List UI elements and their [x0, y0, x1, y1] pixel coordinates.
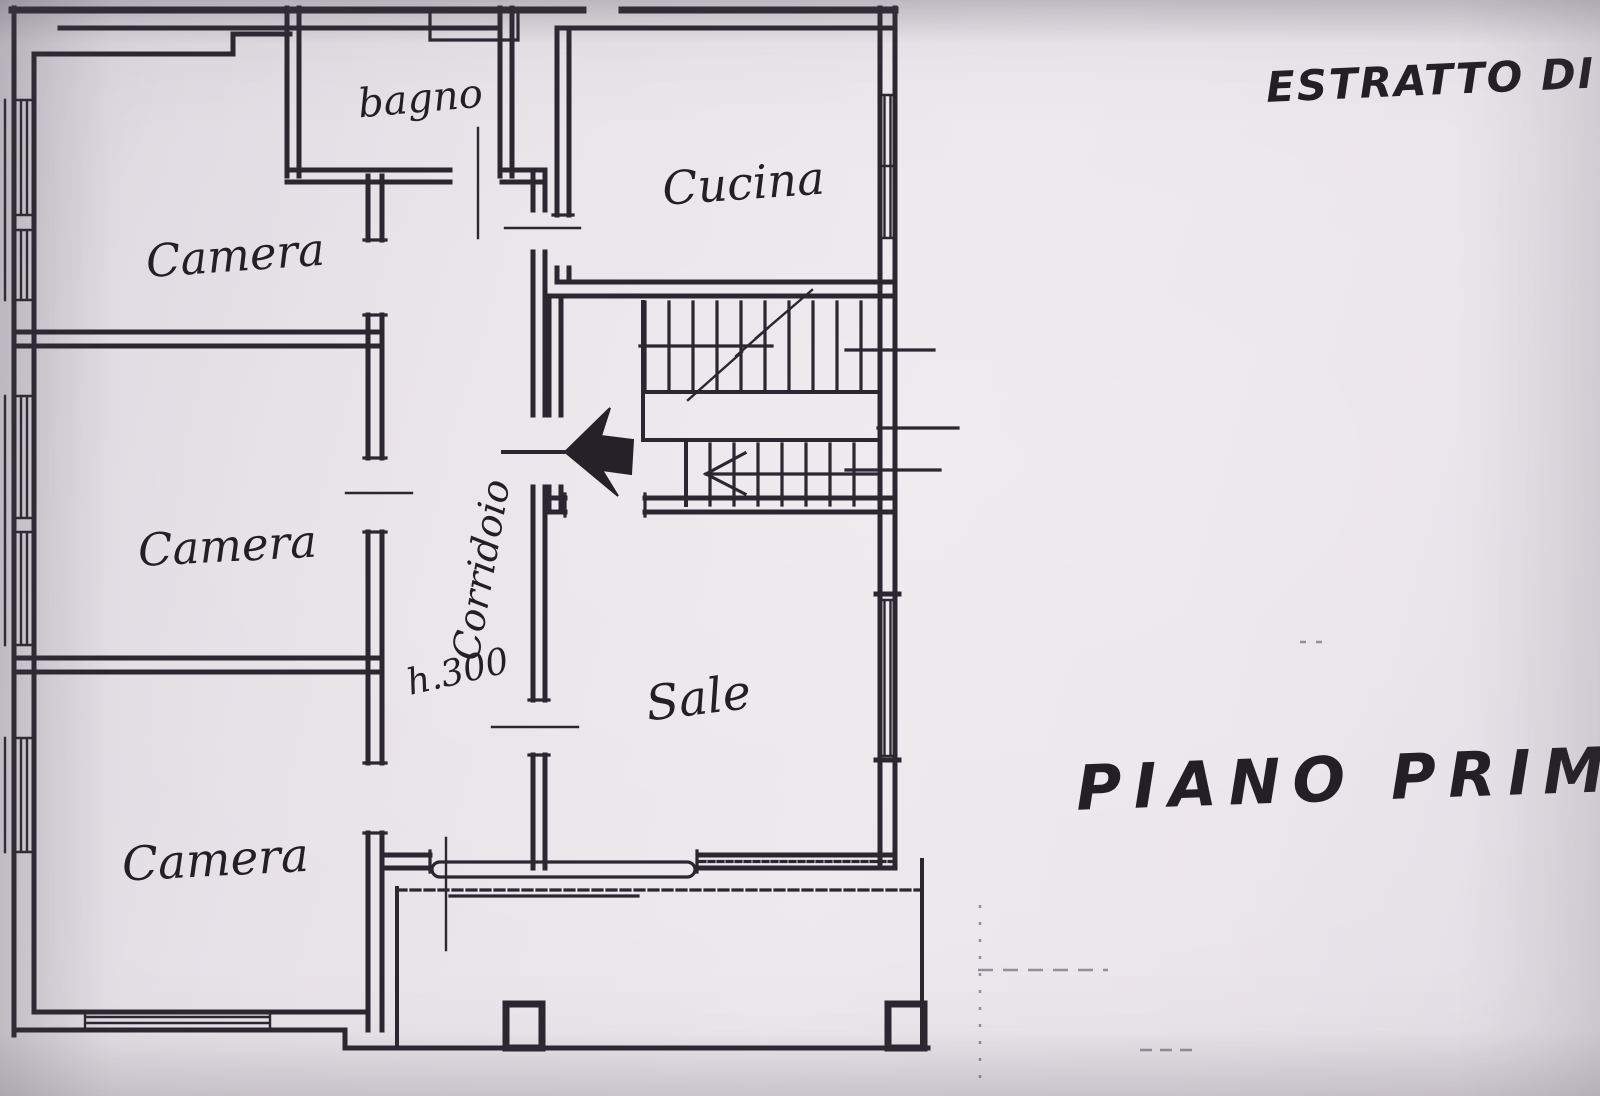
label-camera-top: Camera [144, 223, 326, 288]
annotations: ESTRATTO DI MAP PIANO PRIMO [1075, 43, 1600, 825]
corridor-left-wall [368, 176, 382, 1030]
label-camera-bottom: Camera [121, 828, 310, 893]
left-windows [5, 100, 34, 852]
floor-note: PIANO PRIMO [1075, 731, 1600, 825]
label-camera-middle: Camera [137, 515, 318, 577]
bagno-walls [287, 8, 545, 238]
balcony-pillar [506, 1004, 542, 1048]
stair-direction-arrow [706, 453, 878, 494]
staircase [503, 290, 958, 516]
label-cucina: Cucina [660, 151, 826, 216]
door-leaf [432, 862, 695, 877]
balcony-pillar [888, 1004, 924, 1048]
label-sala: Sale [643, 664, 754, 732]
partition-walls [14, 332, 378, 672]
label-corridoio: Corridoio [444, 476, 519, 664]
label-bagno: bagno [356, 71, 484, 128]
stair-treads-upper [640, 302, 861, 392]
cadastral-dashes [978, 642, 1332, 1088]
entrance-arrow-icon [565, 408, 633, 496]
map-extract-note: ESTRATTO DI MAP [1265, 43, 1600, 112]
floorplan-photo: bagno Cucina Camera Camera Camera Sale C… [0, 0, 1600, 1096]
floor-plan-drawing: bagno Cucina Camera Camera Camera Sale C… [0, 0, 1600, 1096]
